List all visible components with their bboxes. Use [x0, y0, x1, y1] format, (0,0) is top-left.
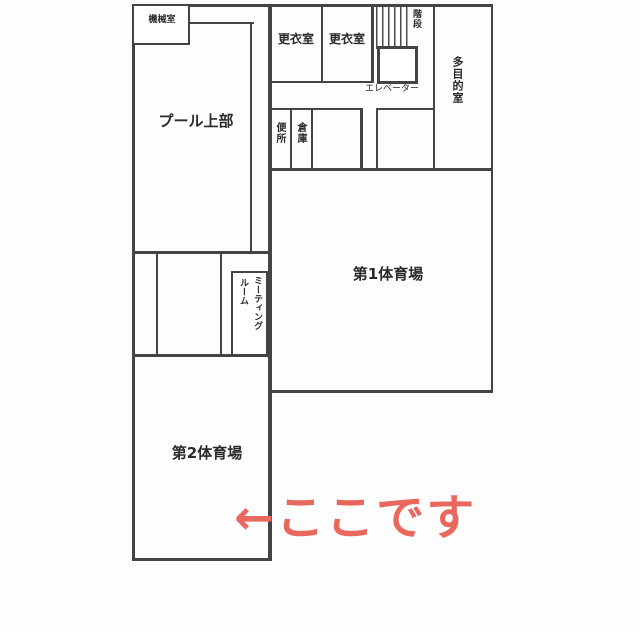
wall-locker-right	[371, 4, 374, 83]
floor-plan: 機械室 プール上部 更衣室 更衣室 階段 エレベーター 多目的室 便所 倉庫 第…	[0, 0, 640, 632]
wall-mid-v1	[156, 252, 158, 355]
wall-right	[491, 4, 493, 392]
pool-upper-label: プール上部	[146, 113, 246, 130]
meeting-room-label-line1: ミーティング	[252, 276, 261, 352]
locker-room-1-label: 更衣室	[272, 33, 320, 46]
wall-mid-bottom	[132, 354, 272, 357]
wall-gallery	[188, 22, 254, 24]
gym-1-label: 第1体育場	[333, 266, 443, 283]
wall-gym1-bottom	[268, 390, 493, 393]
wall-mid-v2	[220, 252, 222, 355]
wall-gym2-bottom	[132, 558, 272, 561]
meeting-room	[231, 271, 268, 356]
wall-cell-4	[376, 108, 378, 170]
elevator-label: エレベーター	[356, 85, 428, 95]
stairs-hatch	[376, 6, 412, 49]
multipurpose-room-label: 多目的室	[452, 56, 463, 116]
wall-cell-2	[311, 108, 313, 170]
wall-cell-3	[360, 108, 363, 170]
wall-smallrow-top-right	[376, 108, 435, 110]
wall-multipurpose-left	[433, 4, 435, 171]
wall-smallrow-bottom	[270, 168, 493, 171]
toilet-label: 便所	[274, 122, 284, 164]
wall-left	[132, 4, 135, 561]
wall-cell-1	[290, 108, 292, 170]
locker-room-2-label: 更衣室	[323, 33, 371, 46]
elevator-shaft	[377, 46, 418, 84]
wall-mid-top	[132, 251, 271, 254]
gym-2-label: 第2体育場	[157, 445, 257, 462]
machine-room-label: 機械室	[136, 16, 188, 26]
storage-label: 倉庫	[295, 122, 305, 164]
stairs-label: 階段	[411, 9, 420, 43]
wall-pool-right	[250, 22, 252, 253]
location-annotation: ←ここです	[234, 478, 476, 548]
meeting-room-label-line2: ルーム	[238, 278, 247, 338]
wall-smallrow-top-left	[270, 108, 363, 110]
